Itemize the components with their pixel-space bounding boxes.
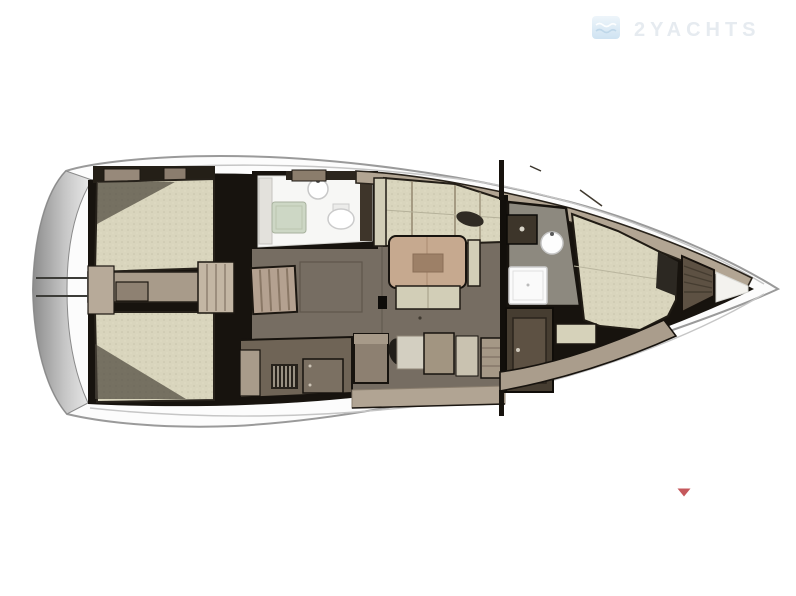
walkway-hatch bbox=[116, 282, 148, 301]
settee-side-cushion bbox=[374, 178, 386, 246]
transom-locker bbox=[88, 266, 114, 314]
mast-post bbox=[378, 296, 387, 309]
door-handle bbox=[309, 365, 312, 368]
shower-floor bbox=[272, 202, 306, 233]
head-shelf bbox=[292, 170, 326, 181]
chainplate-bottom bbox=[499, 390, 504, 416]
watermark-logo: 2YACHTS bbox=[590, 12, 790, 44]
settee-aft-cushion bbox=[456, 336, 478, 376]
faucet bbox=[550, 232, 554, 236]
galley-door bbox=[303, 359, 343, 393]
deck-fitting bbox=[580, 190, 602, 206]
chainplate-top bbox=[499, 160, 504, 200]
nav-seat-cushion bbox=[397, 336, 427, 369]
shower-drain bbox=[527, 284, 530, 287]
salon-side-cushion bbox=[468, 240, 480, 286]
triangle-down-icon[interactable] bbox=[678, 489, 691, 497]
red-triangle-marker[interactable] bbox=[677, 488, 691, 497]
nav-desk-top bbox=[354, 334, 388, 344]
table-inlay bbox=[413, 254, 443, 272]
head-door bbox=[259, 178, 272, 244]
fwd-bench bbox=[556, 324, 596, 344]
waves-logo-icon bbox=[592, 16, 620, 39]
door-handle bbox=[309, 384, 312, 387]
counter-knob bbox=[520, 227, 525, 232]
head-counter bbox=[360, 176, 372, 241]
companionway-steps bbox=[251, 266, 297, 314]
yacht-deck-plan bbox=[0, 0, 796, 596]
galley-aft-cabinet bbox=[424, 333, 454, 374]
toilet bbox=[328, 209, 354, 229]
hatch-pull bbox=[418, 316, 421, 319]
watermark-brand-text: 2YACHTS bbox=[634, 19, 761, 41]
deck-fitting bbox=[530, 166, 541, 171]
galley-end-cabinet bbox=[240, 350, 260, 396]
wardrobe-handle bbox=[516, 348, 520, 352]
